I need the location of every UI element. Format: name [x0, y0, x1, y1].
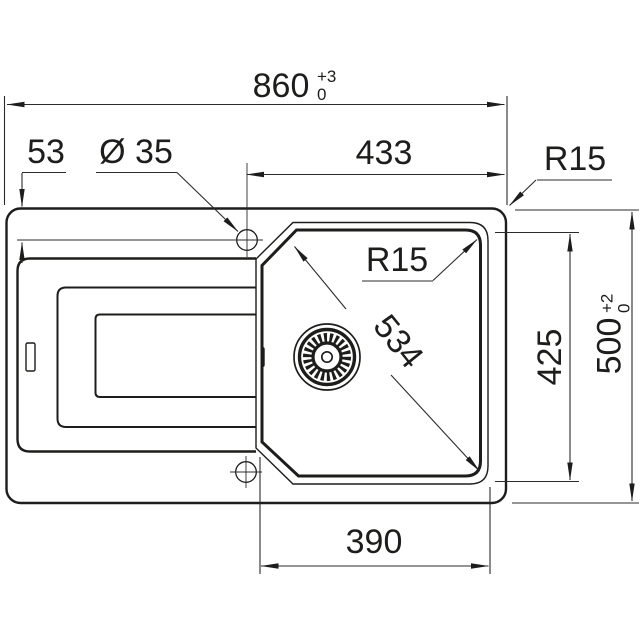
dim-r15-bowl-label: R15	[366, 241, 428, 279]
tap-hole-top	[17, 163, 263, 257]
strainer-center-knob	[322, 352, 332, 362]
drainboard-groove-inner	[96, 315, 257, 398]
dim-tap-offset: 53	[22, 133, 66, 263]
dim-outer-radius: R15	[510, 140, 613, 206]
tap-hole-bottom	[230, 456, 262, 488]
dim-860-label: 860	[253, 67, 310, 105]
overflow-slot	[26, 343, 35, 371]
dim-tap-diameter: Ø 35	[96, 133, 238, 232]
sink-technical-drawing: 860 +3 0 53 Ø 35 433 R15 R15 534	[0, 0, 640, 640]
dim-bowl-depth: 425	[495, 233, 579, 482]
dim-860-tol-plus: +3	[317, 67, 336, 86]
dim-overall-width: 860 +3 0	[5, 67, 508, 205]
dim-35-label: Ø 35	[99, 133, 173, 171]
dim-r15-bowl-leader	[433, 240, 477, 281]
dim-500-tol-minus: 0	[615, 304, 634, 313]
dim-860-tol-minus: 0	[317, 85, 326, 104]
drawing-canvas: 860 +3 0 53 Ø 35 433 R15 R15 534	[0, 0, 640, 640]
dim-500-label: 500	[591, 318, 629, 375]
dim-425-label: 425	[531, 329, 569, 386]
drainboard-group	[18, 259, 257, 452]
dim-bowl-radius: R15	[362, 240, 477, 282]
dim-tap-to-right: 433	[247, 134, 505, 175]
strainer-basket-ring	[313, 343, 341, 371]
dim-53-label: 53	[27, 133, 65, 171]
dim-r15-outer-label: R15	[544, 140, 606, 178]
dim-433-label: 433	[356, 134, 413, 172]
dim-390-label: 390	[346, 523, 403, 561]
dim-35-leader	[177, 173, 238, 232]
dim-534-label: 534	[366, 308, 431, 376]
drainboard-groove-outer	[58, 288, 257, 428]
dim-534-line-lower	[391, 375, 480, 471]
drain-strainer-icon	[294, 324, 360, 390]
dim-r15-outer-leader	[510, 180, 537, 206]
dim-534-line-upper	[295, 247, 347, 310]
